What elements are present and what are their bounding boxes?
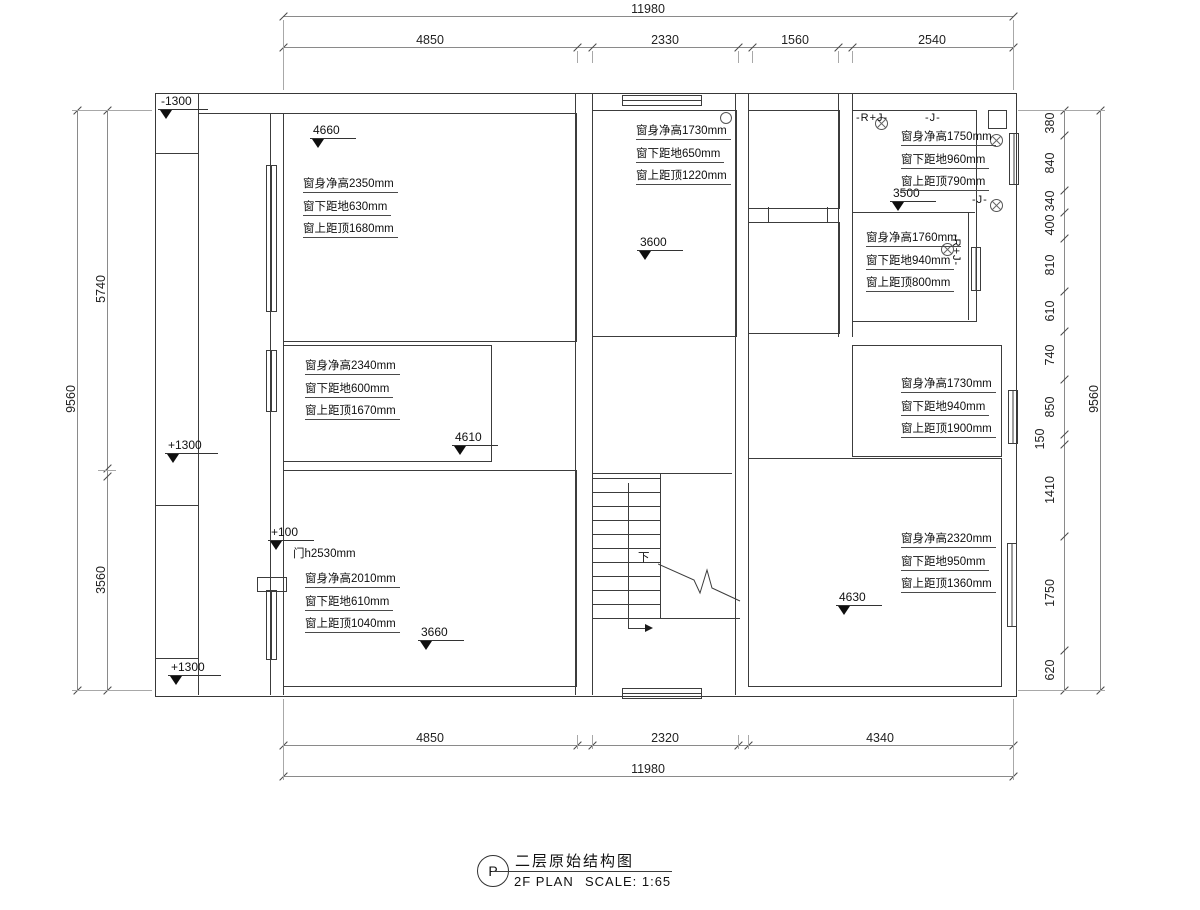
wall (156, 658, 198, 659)
elevation-triangle (454, 446, 466, 455)
window-symbol (266, 350, 277, 412)
dimension-label: 2320 (651, 731, 679, 745)
stair-tread (592, 590, 660, 591)
plan-title-cn: 二层原始结构图 (515, 850, 634, 871)
window-annotation: 窗身净高2010mm 窗下距地610mm 窗上距顶1040mm (305, 570, 400, 638)
window-symbol (971, 247, 981, 291)
dimension-line (1064, 110, 1065, 690)
window-annotation: 窗身净高1750mm 窗下距地960mm 窗上距顶790mm (901, 128, 996, 196)
flue-box (988, 110, 1007, 129)
elevation-triangle (892, 202, 904, 211)
wall (827, 207, 828, 222)
extension-line (738, 735, 739, 749)
extension-line (748, 735, 749, 749)
elevation-marker: 3600 (637, 235, 683, 251)
wall (156, 153, 198, 154)
window-annotation: 窗身净高1730mm 窗下距地940mm 窗上距顶1900mm (901, 375, 996, 443)
dimension-label: 1750 (1043, 565, 1057, 621)
stair-tread (592, 492, 660, 493)
window-annotation: 窗身净高2320mm 窗下距地950mm 窗上距顶1360mm (901, 530, 996, 598)
dimension-label: 9560 (1087, 371, 1101, 427)
dimension-label: 11980 (631, 762, 665, 776)
elevation-marker: 4610 (452, 430, 498, 446)
elevation-marker: +1300 (165, 438, 218, 454)
plan-title-en: 2F PLAN (514, 874, 574, 889)
stair-tread (592, 576, 660, 577)
dimension-label: 2540 (918, 33, 946, 47)
stair-down-label: 下 (638, 549, 650, 565)
elevation-triangle (639, 251, 651, 260)
stair-wall (592, 473, 732, 474)
extension-line (738, 51, 739, 63)
elevation-triangle (167, 454, 179, 463)
extension-line (1018, 110, 1105, 111)
window-annotation: 窗身净高2350mm 窗下距地630mm 窗上距顶1680mm (303, 175, 398, 243)
wall (198, 93, 199, 695)
stair-tread (592, 520, 660, 521)
circuit-tag: -J- (925, 112, 941, 124)
extension-line (852, 51, 853, 63)
circuit-tag: -R+J- (856, 112, 888, 124)
title-underline (492, 871, 672, 872)
circuit-tag: -J- (972, 194, 988, 206)
stair-tread (592, 478, 660, 479)
extension-line (1018, 690, 1105, 691)
elevation-marker: 4630 (836, 590, 882, 606)
extension-line (283, 699, 284, 780)
elevation-marker: +1300 (168, 660, 221, 676)
extension-line (592, 51, 593, 63)
stair-tread (592, 562, 660, 563)
dimension-label: 4850 (416, 33, 444, 47)
elevation-triangle (838, 606, 850, 615)
extension-line (1013, 699, 1014, 780)
dimension-label: 4850 (416, 731, 444, 745)
dimension-label: 1410 (1043, 462, 1057, 518)
stair-tread (592, 604, 660, 605)
dimension-label: 150 (1033, 411, 1047, 467)
dimension-label: 11980 (631, 2, 665, 16)
dimension-label: 2330 (651, 33, 679, 47)
stair-tread (592, 506, 660, 507)
elevation-triangle (270, 541, 282, 550)
extension-line (1013, 20, 1014, 90)
extension-line (752, 51, 753, 63)
window-symbol (266, 165, 277, 312)
dimension-line (283, 776, 1013, 777)
floor-plan-sheet: 下 -R+J- -J- -J- -R+J- -1300 +1300 +1300 … (0, 0, 1200, 910)
dimension-line (283, 745, 1013, 746)
door-height-label: 门h2530mm (293, 545, 356, 561)
dimension-label: 740 (1043, 327, 1057, 383)
extension-line (838, 51, 839, 63)
stair-center-line (628, 483, 629, 628)
dimension-label: 3560 (94, 552, 108, 608)
window-symbol (266, 590, 277, 660)
extension-line (577, 51, 578, 63)
stair-arrow-line (628, 628, 646, 629)
window-symbol (1007, 543, 1017, 627)
stair-tread (592, 548, 660, 549)
dimension-line (283, 16, 1013, 17)
dimension-label: 9560 (64, 371, 78, 427)
break-line (658, 560, 743, 605)
dimension-label: 4340 (866, 731, 894, 745)
elevation-triangle (170, 676, 182, 685)
elevation-marker: -1300 (158, 94, 208, 110)
elevation-marker: 3660 (418, 625, 464, 641)
stair-landing (592, 618, 740, 619)
extension-line (72, 110, 152, 111)
elevation-marker: +100 (268, 525, 314, 541)
dimension-label: 5740 (94, 261, 108, 317)
elevation-triangle (312, 139, 324, 148)
wall (156, 505, 198, 506)
stair-direction-arrow (645, 624, 653, 632)
window-symbol (1009, 133, 1019, 185)
extension-line (72, 690, 152, 691)
wall (768, 207, 769, 222)
window-symbol (1008, 390, 1018, 444)
window-annotation: 窗身净高1760mm 窗下距地940mm 窗上距顶800mm (866, 229, 961, 297)
dimension-label: 1560 (781, 33, 809, 47)
dimension-line (283, 47, 1013, 48)
elevation-marker: 4660 (310, 123, 356, 139)
plan-scale: SCALE: 1:65 (585, 874, 671, 889)
window-annotation: 窗身净高2340mm 窗下距地600mm 窗上距顶1670mm (305, 357, 400, 425)
extension-line (98, 470, 116, 471)
window-symbol (622, 95, 702, 106)
room-shaft-upper (748, 110, 840, 209)
elevation-triangle (420, 641, 432, 650)
extension-line (592, 735, 593, 749)
room-shaft-lower (748, 222, 840, 334)
elevation-triangle (160, 110, 172, 119)
window-symbol (622, 688, 702, 699)
extension-line (577, 735, 578, 749)
extension-line (283, 20, 284, 90)
stair-tread (592, 534, 660, 535)
window-annotation: 窗身净高1730mm 窗下距地650mm 窗上距顶1220mm (636, 122, 731, 190)
